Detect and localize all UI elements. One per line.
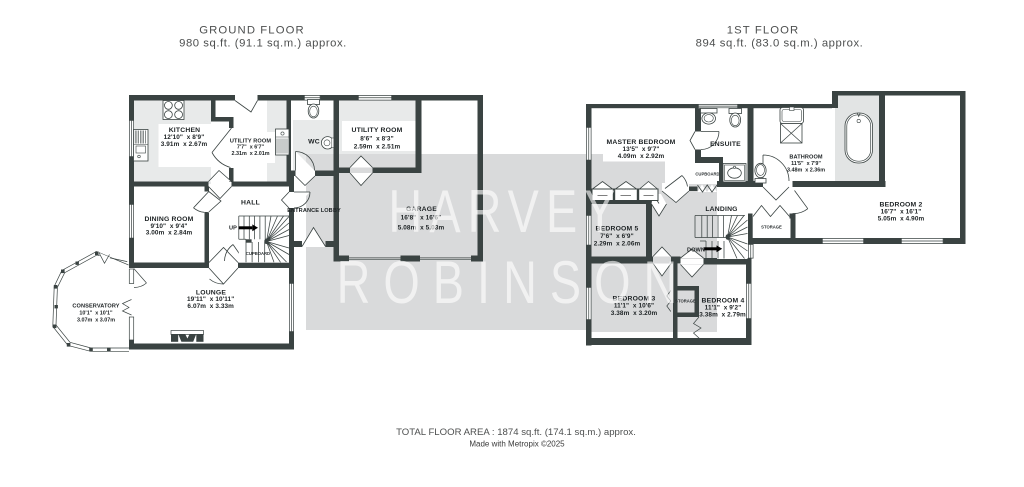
svg-text:3.07m x 3.07m: 3.07m x 3.07m (77, 317, 115, 323)
svg-text:UTILITY ROOM: UTILITY ROOM (352, 127, 403, 134)
svg-text:Made with Metropix ©2025: Made with Metropix ©2025 (469, 439, 565, 448)
svg-text:2.59m x 2.51m: 2.59m x 2.51m (354, 144, 401, 151)
svg-text:3.00m x 2.84m: 3.00m x 2.84m (146, 229, 193, 236)
svg-text:LANDING: LANDING (705, 206, 737, 213)
svg-text:16'7" x 16'1": 16'7" x 16'1" (881, 208, 922, 215)
svg-text:CONSERVATORY: CONSERVATORY (72, 303, 119, 309)
svg-text:ENSUITE: ENSUITE (710, 141, 741, 148)
svg-text:3.48m x 2.36m: 3.48m x 2.36m (787, 168, 825, 174)
svg-text:11'5" x 7'9": 11'5" x 7'9" (791, 161, 821, 167)
svg-text:HALL: HALL (241, 200, 260, 207)
svg-text:MASTER BEDROOM: MASTER BEDROOM (607, 139, 676, 146)
svg-text:4.09m x 2.92m: 4.09m x 2.92m (618, 153, 665, 160)
svg-text:UTILITY ROOM: UTILITY ROOM (230, 139, 271, 145)
svg-text:7'7" x 6'7": 7'7" x 6'7" (237, 145, 265, 151)
svg-text:GROUND FLOOR: GROUND FLOOR (199, 25, 304, 37)
svg-text:STORAGE: STORAGE (761, 225, 782, 230)
svg-text:3.38m x 2.79m: 3.38m x 2.79m (699, 312, 746, 319)
svg-text:ENTRANCE LOBBY: ENTRANCE LOBBY (287, 208, 341, 214)
svg-text:2.31m x 2.01m: 2.31m x 2.01m (231, 151, 269, 157)
svg-text:1ST FLOOR: 1ST FLOOR (727, 25, 799, 37)
svg-text:BATHROOM: BATHROOM (789, 155, 823, 161)
svg-text:HARVEY: HARVEY (388, 178, 622, 245)
svg-text:980 sq.ft. (91.1 sq.m.) approx: 980 sq.ft. (91.1 sq.m.) approx. (179, 37, 347, 49)
svg-text:KITCHEN: KITCHEN (169, 127, 201, 134)
svg-text:CUPBOARD: CUPBOARD (695, 172, 719, 177)
svg-text:CUPBOARD: CUPBOARD (246, 251, 270, 256)
svg-text:UP: UP (229, 226, 237, 232)
svg-text:ROBINSON: ROBINSON (337, 249, 691, 316)
svg-text:10'1" x 10'1": 10'1" x 10'1" (79, 310, 113, 316)
svg-text:BEDROOM 4: BEDROOM 4 (702, 298, 745, 305)
svg-text:BEDROOM 2: BEDROOM 2 (880, 201, 923, 208)
svg-text:5.05m x 4.90m: 5.05m x 4.90m (878, 215, 925, 222)
svg-text:6.07m x 3.33m: 6.07m x 3.33m (187, 303, 234, 310)
svg-text:13'5" x 9'7": 13'5" x 9'7" (622, 146, 659, 153)
svg-text:19'11" x 10'11": 19'11" x 10'11" (187, 296, 234, 303)
svg-text:WC: WC (308, 139, 320, 146)
svg-text:8'6" x 8'3": 8'6" x 8'3" (360, 136, 393, 143)
svg-text:12'10" x 8'9": 12'10" x 8'9" (164, 134, 205, 141)
svg-text:3.91m x 2.67m: 3.91m x 2.67m (161, 141, 208, 148)
svg-text:11'1" x 9'2": 11'1" x 9'2" (705, 305, 742, 312)
svg-text:TOTAL FLOOR AREA : 1874 sq.ft.: TOTAL FLOOR AREA : 1874 sq.ft. (174.1 sq… (396, 427, 636, 438)
svg-text:894 sq.ft. (83.0 sq.m.) approx: 894 sq.ft. (83.0 sq.m.) approx. (696, 37, 864, 49)
